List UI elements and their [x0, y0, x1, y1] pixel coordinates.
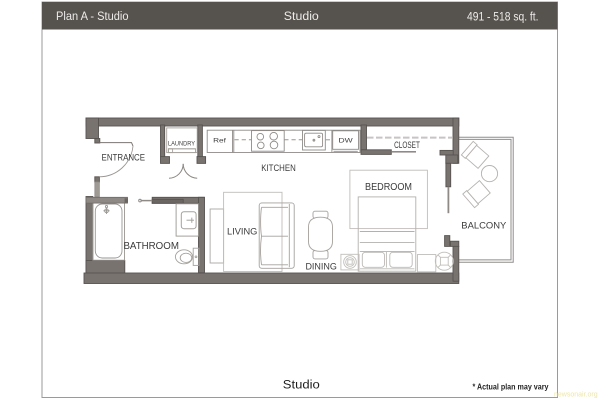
- svg-text:Plan A - Studio: Plan A - Studio: [56, 9, 129, 23]
- svg-text:Studio: Studio: [283, 377, 320, 391]
- svg-text:newsonair.org: newsonair.org: [554, 392, 598, 399]
- svg-text:BALCONY: BALCONY: [461, 220, 506, 230]
- svg-text:KITCHEN: KITCHEN: [261, 163, 296, 173]
- svg-text:CLOSET: CLOSET: [394, 140, 420, 150]
- svg-text:* Actual plan may vary: * Actual plan may vary: [473, 383, 549, 392]
- svg-text:Ref: Ref: [213, 138, 226, 145]
- svg-text:Studio: Studio: [284, 11, 319, 23]
- svg-text:LIVING: LIVING: [227, 226, 257, 236]
- svg-text:491 - 518 sq. ft.: 491 - 518 sq. ft.: [467, 11, 539, 23]
- svg-text:BATHROOM: BATHROOM: [123, 241, 179, 252]
- svg-text:DINING: DINING: [305, 262, 337, 272]
- svg-text:BEDROOM: BEDROOM: [365, 182, 412, 193]
- svg-text:DW: DW: [339, 137, 353, 144]
- svg-text:LAUNDRY: LAUNDRY: [168, 141, 195, 147]
- svg-text:ENTRANCE: ENTRANCE: [102, 153, 146, 164]
